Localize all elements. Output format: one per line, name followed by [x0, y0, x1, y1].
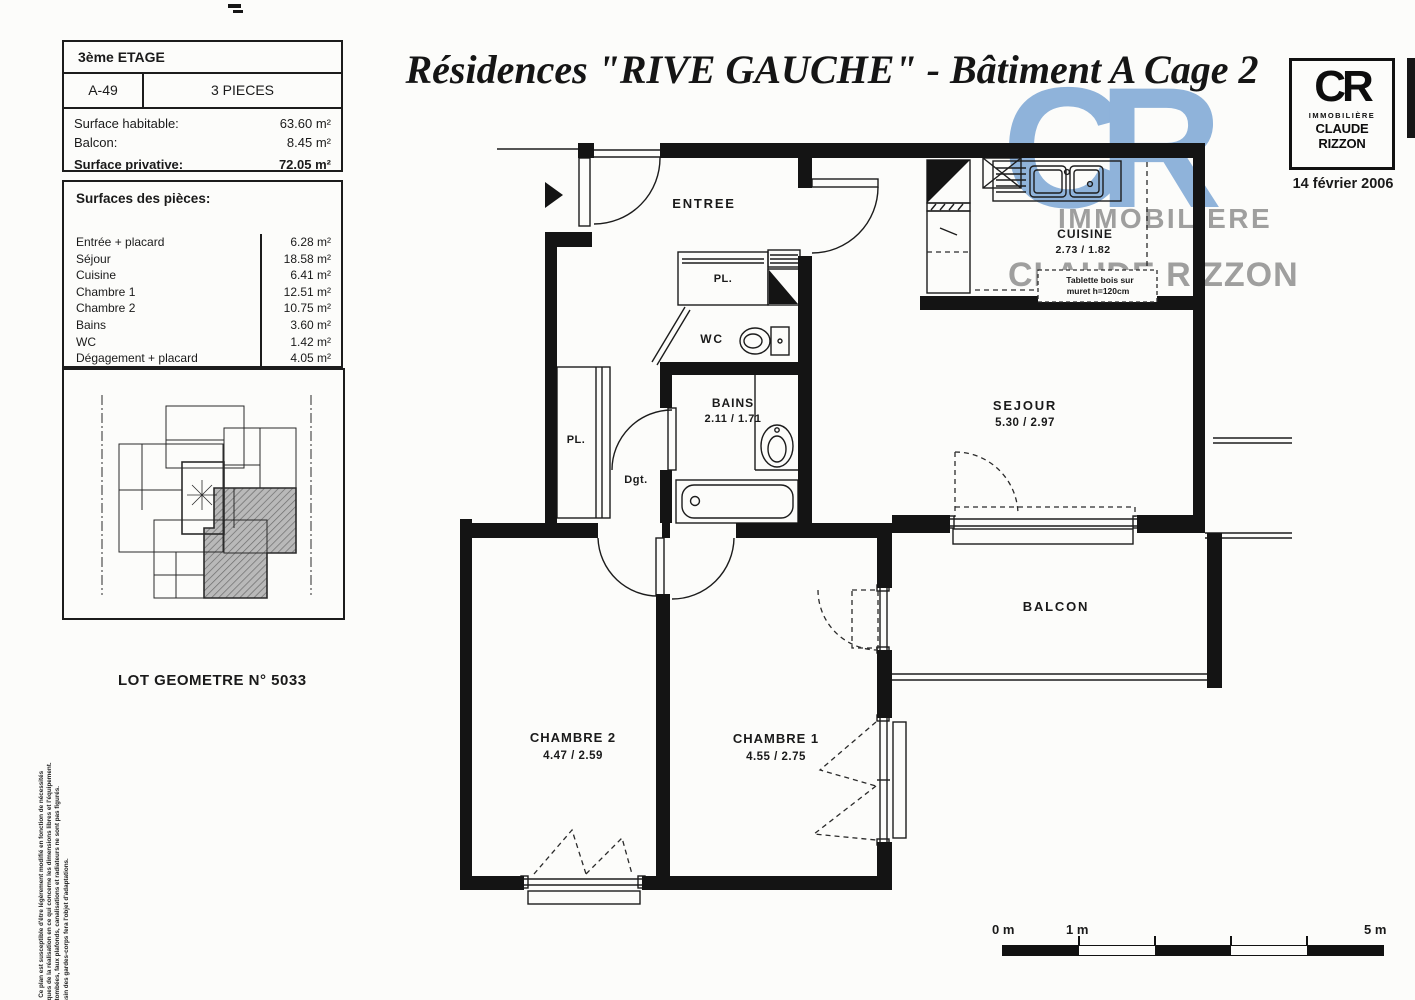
surfaces-title: Surfaces des pièces: — [64, 182, 341, 206]
note-line1: Tablette bois sur — [1066, 275, 1134, 285]
room-label: Dégagement + placard — [76, 350, 198, 367]
room-label: Chambre 1 — [76, 284, 135, 301]
surface-label: Surface privative: — [74, 155, 183, 174]
dims-chambre1: 4.55 / 2.75 — [746, 751, 806, 763]
disclaimer-line: Les retombées, faux plafonds, canalisati… — [54, 719, 62, 1000]
scale-1m: 1 m — [1066, 922, 1088, 937]
disclaimer-line: Le dessin des gardes-corps fera l'objet … — [63, 719, 71, 1000]
tablette-note: Tablette bois sur muret h=120cm — [1038, 270, 1157, 302]
surface-label: Surface habitable: — [74, 114, 179, 133]
room-label: Chambre 2 — [76, 300, 135, 317]
label-bains: BAINS — [712, 396, 754, 410]
scan-artifact — [228, 4, 241, 8]
scale-bar: 0 m 1 m 5 m — [990, 922, 1400, 966]
legal-disclaimer: NOTA: Ce plan est susceptible d'être lég… — [38, 719, 72, 1000]
key-plan-box — [62, 368, 345, 620]
scanned-floor-plan-page: 3ème ETAGE A-49 3 PIECES Surface habitab… — [0, 0, 1415, 1000]
surface-value: 72.05 m² — [279, 155, 331, 174]
lot-geometre-label: LOT GEOMETRE N° 5033 — [118, 672, 398, 689]
surface-value: 8.45 m² — [287, 133, 331, 152]
room-label: Entrée + placard — [76, 234, 164, 251]
label-degagement: Dgt. — [624, 474, 647, 486]
floor-plan: Tablette bois sur muret h=120cm ENTREE P… — [440, 130, 1310, 920]
room-area: 10.75 m² — [284, 300, 331, 317]
dims-cuisine: 2.73 / 1.82 — [1055, 244, 1110, 256]
label-balcon: BALCON — [1023, 599, 1089, 614]
scan-artifact — [1407, 58, 1415, 138]
scan-artifact — [233, 10, 243, 13]
disclaimer-line: techniques de la réalisation en ce qui c… — [46, 719, 54, 1000]
label-pl-degagement: PL. — [567, 434, 586, 446]
lot-number: A-49 — [64, 74, 144, 107]
floor-label: 3ème ETAGE — [64, 42, 341, 74]
room-label: Bains — [76, 317, 106, 334]
label-sejour: SEJOUR — [993, 398, 1057, 413]
key-plan — [64, 370, 343, 618]
scale-0m: 0 m — [992, 922, 1014, 937]
label-chambre2: CHAMBRE 2 — [530, 730, 616, 745]
room-area: 6.28 m² — [290, 234, 331, 251]
label-entree: ENTREE — [672, 196, 736, 211]
surface-label: Balcon: — [74, 133, 117, 152]
apartment-info-box: 3ème ETAGE A-49 3 PIECES Surface habitab… — [62, 40, 343, 172]
dims-chambre2: 4.47 / 2.59 — [543, 750, 603, 762]
room-area: 4.05 m² — [290, 350, 331, 367]
logo-immobiliere: IMMOBILIÈRE — [1292, 111, 1392, 120]
scale-5m: 5 m — [1364, 922, 1386, 937]
surface-value: 63.60 m² — [280, 114, 331, 133]
room-area: 1.42 m² — [290, 334, 331, 351]
scale-bar-segments — [1002, 945, 1384, 956]
dashed-lines — [534, 162, 1147, 874]
room-area: 18.58 m² — [284, 251, 331, 268]
disclaimer-line: NOTA: Ce plan est susceptible d'être lég… — [38, 719, 46, 1000]
page-title: Résidences "RIVE GAUCHE" - Bâtiment A Ca… — [378, 46, 1286, 93]
dims-sejour: 5.30 / 2.97 — [995, 417, 1055, 429]
room-area: 12.51 m² — [284, 284, 331, 301]
room-area: 3.60 m² — [290, 317, 331, 334]
label-cuisine: CUISINE — [1057, 227, 1113, 241]
room-area: 6.41 m² — [290, 267, 331, 284]
label-chambre1: CHAMBRE 1 — [733, 731, 819, 746]
room-label: Séjour — [76, 251, 111, 268]
room-labels: ENTREE PL. WC BAINS 2.11 / 1.71 PL. Dgt.… — [530, 196, 1113, 763]
note-line2: muret h=120cm — [1067, 286, 1130, 296]
label-wc: WC — [700, 332, 724, 346]
room-surfaces-box: Surfaces des pièces: Entrée + placard6.2… — [62, 180, 343, 368]
label-pl-entree: PL. — [714, 273, 733, 285]
cr-logo-icon: CR — [1292, 66, 1392, 108]
room-label: WC — [76, 334, 96, 351]
dims-bains: 2.11 / 1.71 — [705, 413, 762, 425]
apartment-type: 3 PIECES — [144, 74, 341, 107]
room-label: Cuisine — [76, 267, 116, 284]
